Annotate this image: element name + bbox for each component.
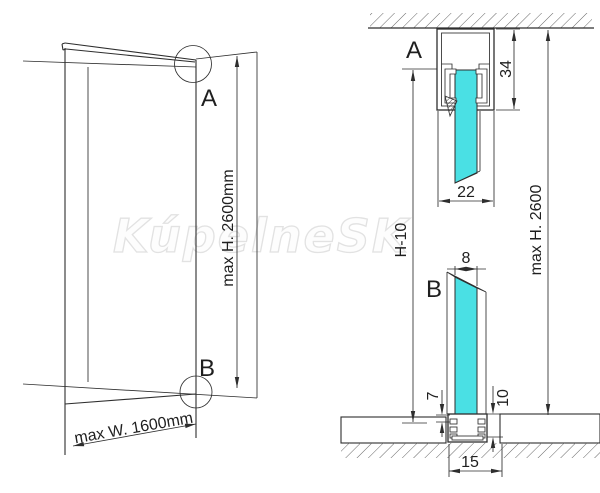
profile-base-slot	[452, 436, 483, 440]
arrowhead-left	[455, 267, 466, 271]
floor-slab-right	[500, 414, 600, 443]
dimension-max-height-section: max H. 2600	[528, 30, 550, 415]
detail-a-label: A	[406, 37, 422, 64]
dimension-glass-thickness: 8	[447, 250, 486, 286]
dimension-profile-height: 34	[496, 29, 520, 110]
arrowhead-up	[440, 422, 444, 433]
ceiling-hatch	[370, 13, 592, 28]
profile-height-label: 34	[498, 60, 515, 78]
ceiling-line	[23, 61, 196, 67]
top-bar-upper-edge	[65, 43, 196, 60]
arrowhead-down	[440, 404, 444, 415]
arrowhead-down	[546, 404, 550, 415]
glass-height-label: H-10	[393, 223, 410, 258]
arrowhead-up	[512, 30, 516, 41]
dimension-glass-height: H-10	[393, 69, 437, 423]
marker-a-label: A	[201, 85, 217, 112]
glass-panel-b	[455, 277, 477, 436]
shower-screen-drawing: KúpelneSK A B max H. 2600mm	[0, 0, 600, 493]
profile-rung	[478, 419, 485, 424]
arrowhead-down	[235, 377, 239, 388]
profile-rung	[450, 427, 457, 432]
profile-width-label: 22	[457, 184, 475, 201]
max-width-label: max W. 1600mm	[73, 410, 194, 448]
technical-drawing-page: KúpelneSK A B max H. 2600mm	[0, 0, 600, 493]
arrowhead-left	[449, 469, 460, 473]
detail-circle-a	[175, 46, 212, 83]
profile-lip-label: 7	[425, 391, 442, 400]
arrowhead-up	[411, 70, 415, 81]
max-height-label: max H. 2600mm	[220, 169, 237, 286]
floor-line	[23, 384, 257, 398]
detail-b-label: B	[426, 276, 442, 303]
detail-a-section: A 34 22	[406, 29, 520, 207]
arrowhead-up	[491, 437, 495, 448]
floor-slab-left	[341, 417, 446, 443]
arrowhead-up	[546, 30, 550, 41]
glass-panel-a	[455, 70, 477, 183]
glass-thickness-label: 8	[462, 250, 471, 267]
arrowhead-up	[235, 56, 239, 67]
arrowhead-right	[466, 267, 477, 271]
recess-width-label: 15	[461, 454, 479, 471]
arrowhead-left	[439, 199, 450, 203]
recess-depth-label: 10	[495, 389, 512, 407]
pane-bottom-edge	[65, 394, 196, 404]
watermark-text: KúpelneSK	[113, 209, 411, 263]
arrowhead-down	[512, 98, 516, 109]
max-height-label: max H. 2600	[528, 185, 545, 276]
detail-b-section: B 8	[341, 250, 600, 477]
dimension-max-width: max W. 1600mm	[73, 410, 196, 448]
arrowhead-right	[482, 199, 493, 203]
profile-rung	[450, 419, 457, 424]
profile-rung	[478, 427, 485, 432]
marker-b-label: B	[199, 355, 215, 382]
arrowhead-right	[491, 469, 502, 473]
